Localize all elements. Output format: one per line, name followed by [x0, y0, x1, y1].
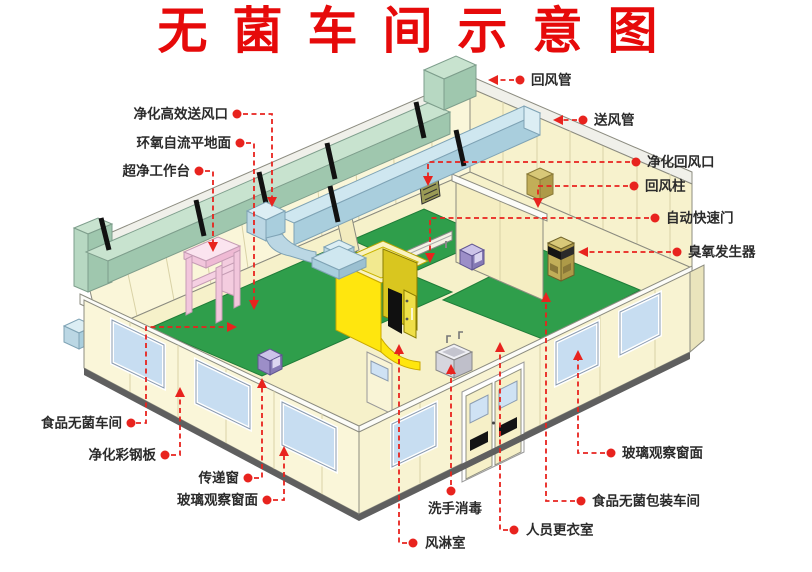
- right-corner-return: [690, 265, 704, 352]
- label-hand-wash: 洗手消毒: [428, 500, 482, 516]
- label-glass-window-left: 玻璃观察窗面: [177, 492, 258, 508]
- label-food-packaging-workshop: 食品无菌包装车间: [592, 493, 700, 509]
- cleanroom-diagram-page: { "title": { "text": "无菌车间示意图", "color":…: [0, 0, 812, 572]
- label-hepa-supply-outlet: 净化高效送风口: [134, 106, 229, 122]
- label-ozone-generator: 臭氧发生器: [688, 244, 756, 260]
- label-transfer-window: 传递窗: [198, 470, 240, 486]
- label-clean-bench: 超净工作台: [122, 163, 191, 179]
- air-shower-doorway: [388, 288, 402, 334]
- isometric-cleanroom-drawing: 无菌车间示意图 净化高效送风口 环氧自流平地面 超净工作台 食品无菌车间 净化彩…: [0, 0, 812, 572]
- label-supply-duct: 送风管: [593, 112, 635, 128]
- label-epoxy-floor: 环氧自流平地面: [137, 135, 232, 151]
- return-air-column: [527, 168, 553, 200]
- label-auto-fast-door: 自动快速门: [666, 210, 734, 226]
- label-return-column: 回风柱: [645, 178, 686, 194]
- label-air-shower: 风淋室: [425, 535, 466, 551]
- page-title: 无菌车间示意图: [158, 3, 683, 59]
- leader-return-duct: [488, 75, 525, 85]
- label-food-sterile-workshop: 食品无菌车间: [41, 415, 122, 431]
- transfer-window-box: [258, 349, 282, 375]
- air-shower-door-panel: [404, 290, 416, 338]
- equipment-box: [460, 244, 484, 270]
- label-purify-return-vent: 净化回风口: [647, 154, 715, 170]
- label-glass-window-right: 玻璃观察窗面: [622, 445, 703, 461]
- label-return-duct: 回风管: [531, 72, 572, 88]
- label-clean-steel-panel: 净化彩钢板: [89, 447, 157, 463]
- label-changing-room: 人员更衣室: [526, 522, 594, 538]
- ozone-generator-cabinet: [548, 237, 574, 281]
